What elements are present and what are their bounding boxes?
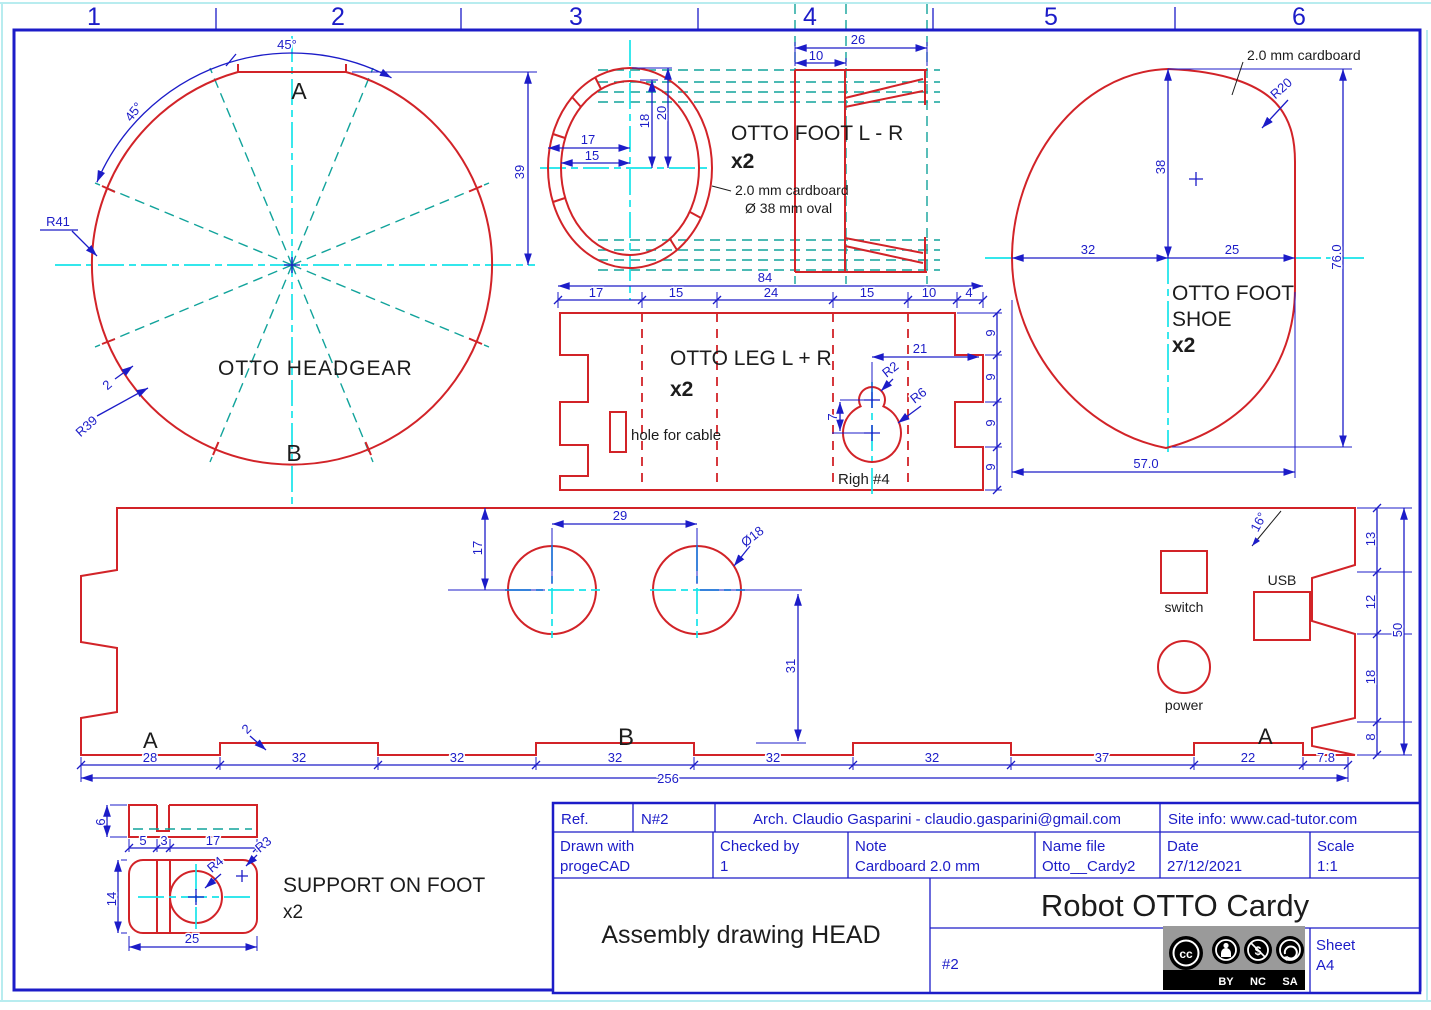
dim-7: 7 (825, 413, 840, 420)
site-info: Site info: www.cad-tutor.com (1168, 811, 1357, 828)
ruler-number-6: 6 (1292, 3, 1306, 31)
headgear-title: OTTO HEADGEAR (218, 357, 413, 380)
usb-label: USB (1268, 572, 1297, 588)
drawn-with-value: progeCAD (560, 858, 630, 875)
leg-title: OTTO LEG L + R (670, 347, 832, 370)
drawing-canvas: 1 2 3 4 5 6 45° 45° R41 R39 2 39 A B OTT… (0, 0, 1431, 1005)
cc-license-badge: cc $ BY NC SA (1163, 926, 1305, 990)
dim-13: 13 (1363, 532, 1378, 546)
dim-15-oval: 15 (585, 148, 599, 163)
dim-12: 12 (1363, 595, 1378, 609)
dim-9b: 9 (983, 373, 998, 380)
support-top-view (129, 805, 257, 837)
dim-b78: 7.8 (1317, 750, 1335, 765)
dim-45-side: 45° (122, 99, 146, 124)
band-outline (81, 508, 1355, 755)
dim-31: 31 (783, 659, 798, 673)
drawn-with-label: Drawn with (560, 838, 634, 855)
dim-20: 20 (654, 106, 669, 120)
dim-17-band: 17 (470, 541, 485, 555)
dim-r39: R39 (72, 413, 100, 440)
r39-leader (97, 388, 148, 416)
scale-label: Scale (1317, 838, 1355, 855)
checked-by-label: Checked by (720, 838, 800, 855)
cc-by-label: BY (1218, 976, 1234, 988)
ruler-number-3: 3 (569, 3, 583, 31)
dim-seg24: 24 (764, 285, 778, 300)
dim-seg15a: 15 (669, 285, 683, 300)
section-label-a: A (291, 78, 307, 104)
step-2-leader (115, 366, 133, 379)
dim-17-oval: 17 (581, 132, 595, 147)
foot-profile (795, 70, 927, 272)
dim-6: 6 (93, 818, 108, 825)
dim-25-shoe: 25 (1225, 242, 1239, 257)
dim-seg15b: 15 (860, 285, 874, 300)
foot-lr-part: 17 15 18 20 26 10 OTTO FOOT L - R x2 2.0… (540, 32, 940, 300)
cad-sheet: 1 2 3 4 5 6 45° 45° R41 R39 2 39 A B OTT… (0, 0, 1431, 1005)
foot-projection-lines (598, 70, 940, 270)
dim-seg4: 4 (965, 285, 972, 300)
note-value: Cardboard 2.0 mm (855, 858, 980, 875)
eye-centerlines (505, 545, 745, 638)
support-title: SUPPORT ON FOOT (283, 874, 485, 897)
ruler-number-2: 2 (331, 3, 345, 31)
scale-value: 1:1 (1317, 858, 1338, 875)
shoe-material-note: 2.0 mm cardboard (1247, 47, 1361, 63)
checked-by-value: 1 (720, 858, 728, 875)
dim-16de: 16° (1247, 510, 1269, 534)
dim-18: 18 (637, 114, 652, 128)
cc-sa-label: SA (1282, 976, 1297, 988)
leg-qty: x2 (670, 378, 693, 401)
ruler-number-4: 4 (803, 3, 817, 31)
file-name-label: Name file (1042, 838, 1105, 855)
band-label-a-right: A (1258, 724, 1273, 749)
dim-25: 25 (185, 931, 199, 946)
dim-3: 3 (160, 833, 167, 848)
dim-45-arc-tick (226, 54, 236, 66)
author-text: Arch. Claudio Gasparini - claudio.gaspar… (753, 811, 1121, 828)
dim-dia18: Ø18 (738, 523, 767, 550)
dim-b32d: 32 (766, 750, 780, 765)
title-block: Ref. N#2 Arch. Claudio Gasparini - claud… (553, 803, 1420, 993)
material-leader (712, 186, 731, 191)
righ-note: Righ #4 (838, 471, 890, 488)
ruler: 1 2 3 4 5 6 (87, 3, 1306, 31)
project-title: Robot OTTO Cardy (1041, 888, 1310, 923)
switch-hole (1161, 551, 1207, 593)
ref-label: Ref. (561, 811, 589, 828)
ruler-number-1: 1 (87, 3, 101, 31)
cable-hole (610, 412, 626, 452)
date-value: 27/12/2021 (1167, 858, 1242, 875)
dim-14: 14 (104, 892, 119, 906)
dim-38: 38 (1153, 160, 1168, 174)
dim-32-shoe: 32 (1081, 242, 1095, 257)
dim-b28: 28 (143, 750, 157, 765)
dim-45-top: 45° (277, 37, 297, 52)
dim-57: 57.0 (1133, 456, 1158, 471)
dim-9d: 9 (983, 463, 998, 470)
dim-b37: 37 (1095, 750, 1109, 765)
dim-step-2-band: 2 (238, 721, 254, 737)
foot-lr-qty: x2 (731, 150, 754, 173)
drawing-title: Assembly drawing HEAD (601, 921, 880, 949)
sheet-label: Sheet (1316, 937, 1356, 954)
dim-r6: R6 (907, 384, 929, 406)
foot-lr-oval-note: Ø 38 mm oval (745, 200, 832, 216)
dim-10: 10 (809, 48, 823, 63)
dim-17-support: 17 (206, 833, 220, 848)
dim-26: 26 (851, 32, 865, 47)
dim-76: 76.0 (1329, 244, 1344, 269)
dim-b32b: 32 (450, 750, 464, 765)
dim-9c: 9 (983, 419, 998, 426)
ref-value: N#2 (641, 811, 669, 828)
cc-mark-text: cc (1179, 947, 1193, 961)
dim-29: 29 (613, 508, 627, 523)
dim-b256: 256 (657, 771, 679, 786)
sheet-number: #2 (942, 956, 959, 973)
file-name-value: Otto__Cardy2 (1042, 858, 1135, 875)
dim-r4: R4 (204, 853, 226, 875)
head-band-part: switch USB power A B A 29 17 Ø18 31 16° … (77, 504, 1412, 786)
foot-lr-material-note: 2.0 mm cardboard (735, 182, 849, 198)
dim-9a: 9 (983, 329, 998, 336)
foot-lr-title: OTTO FOOT L - R (731, 122, 903, 145)
dim-step-2: 2 (99, 377, 114, 393)
support-slot (157, 805, 169, 831)
dim-seg10: 10 (922, 285, 936, 300)
support-center-marks (188, 870, 248, 905)
headgear-part: 45° 45° R41 R39 2 39 A B OTTO HEADGEAR (40, 36, 537, 506)
shoe-title-line2: SHOE (1172, 308, 1232, 331)
dim-b32e: 32 (925, 750, 939, 765)
power-label: power (1165, 697, 1203, 713)
switch-label: switch (1165, 599, 1204, 615)
support-qty: x2 (283, 902, 303, 923)
date-label: Date (1167, 838, 1199, 855)
section-label-b: B (286, 440, 301, 466)
shoe-title-line1: OTTO FOOT (1172, 282, 1294, 305)
dim-b22: 22 (1241, 750, 1255, 765)
dim-8: 8 (1363, 733, 1378, 740)
ruler-number-5: 5 (1044, 3, 1058, 31)
power-hole (1158, 641, 1210, 693)
leg-fold-lines (642, 313, 908, 490)
dim-84: 84 (758, 270, 772, 285)
dim-21: 21 (913, 341, 927, 356)
usb-hole (1254, 592, 1310, 640)
support-part: 6 5 3 17 R4 R3 14 25 SUPPORT ON FOOT x2 (93, 803, 485, 951)
dim-seg17: 17 (589, 285, 603, 300)
shoe-part: 38 32 25 76.0 57.0 R20 2.0 mm cardboard … (985, 47, 1368, 478)
dim-5: 5 (139, 833, 146, 848)
shoe-center-mark (1189, 172, 1203, 186)
dim-18-band: 18 (1363, 670, 1378, 684)
headgear-center-mark (284, 257, 300, 273)
shoe-qty: x2 (1172, 334, 1195, 357)
dim-39: 39 (512, 165, 527, 179)
dim-r41: R41 (46, 214, 70, 229)
dim-b32a: 32 (292, 750, 306, 765)
cable-hole-note: hole for cable (631, 427, 721, 444)
dim-50: 50 (1390, 623, 1405, 637)
sheet-value: A4 (1316, 957, 1334, 974)
dim-r2: R2 (879, 358, 901, 380)
cc-nc-label: NC (1250, 976, 1266, 988)
dim-b32c: 32 (608, 750, 622, 765)
band-label-b: B (618, 724, 634, 751)
leg-part: 84 17 15 24 15 10 4 hole for cable 21 R2… (554, 270, 1002, 497)
note-label: Note (855, 838, 887, 855)
foot-oval-centerlines (540, 40, 708, 300)
